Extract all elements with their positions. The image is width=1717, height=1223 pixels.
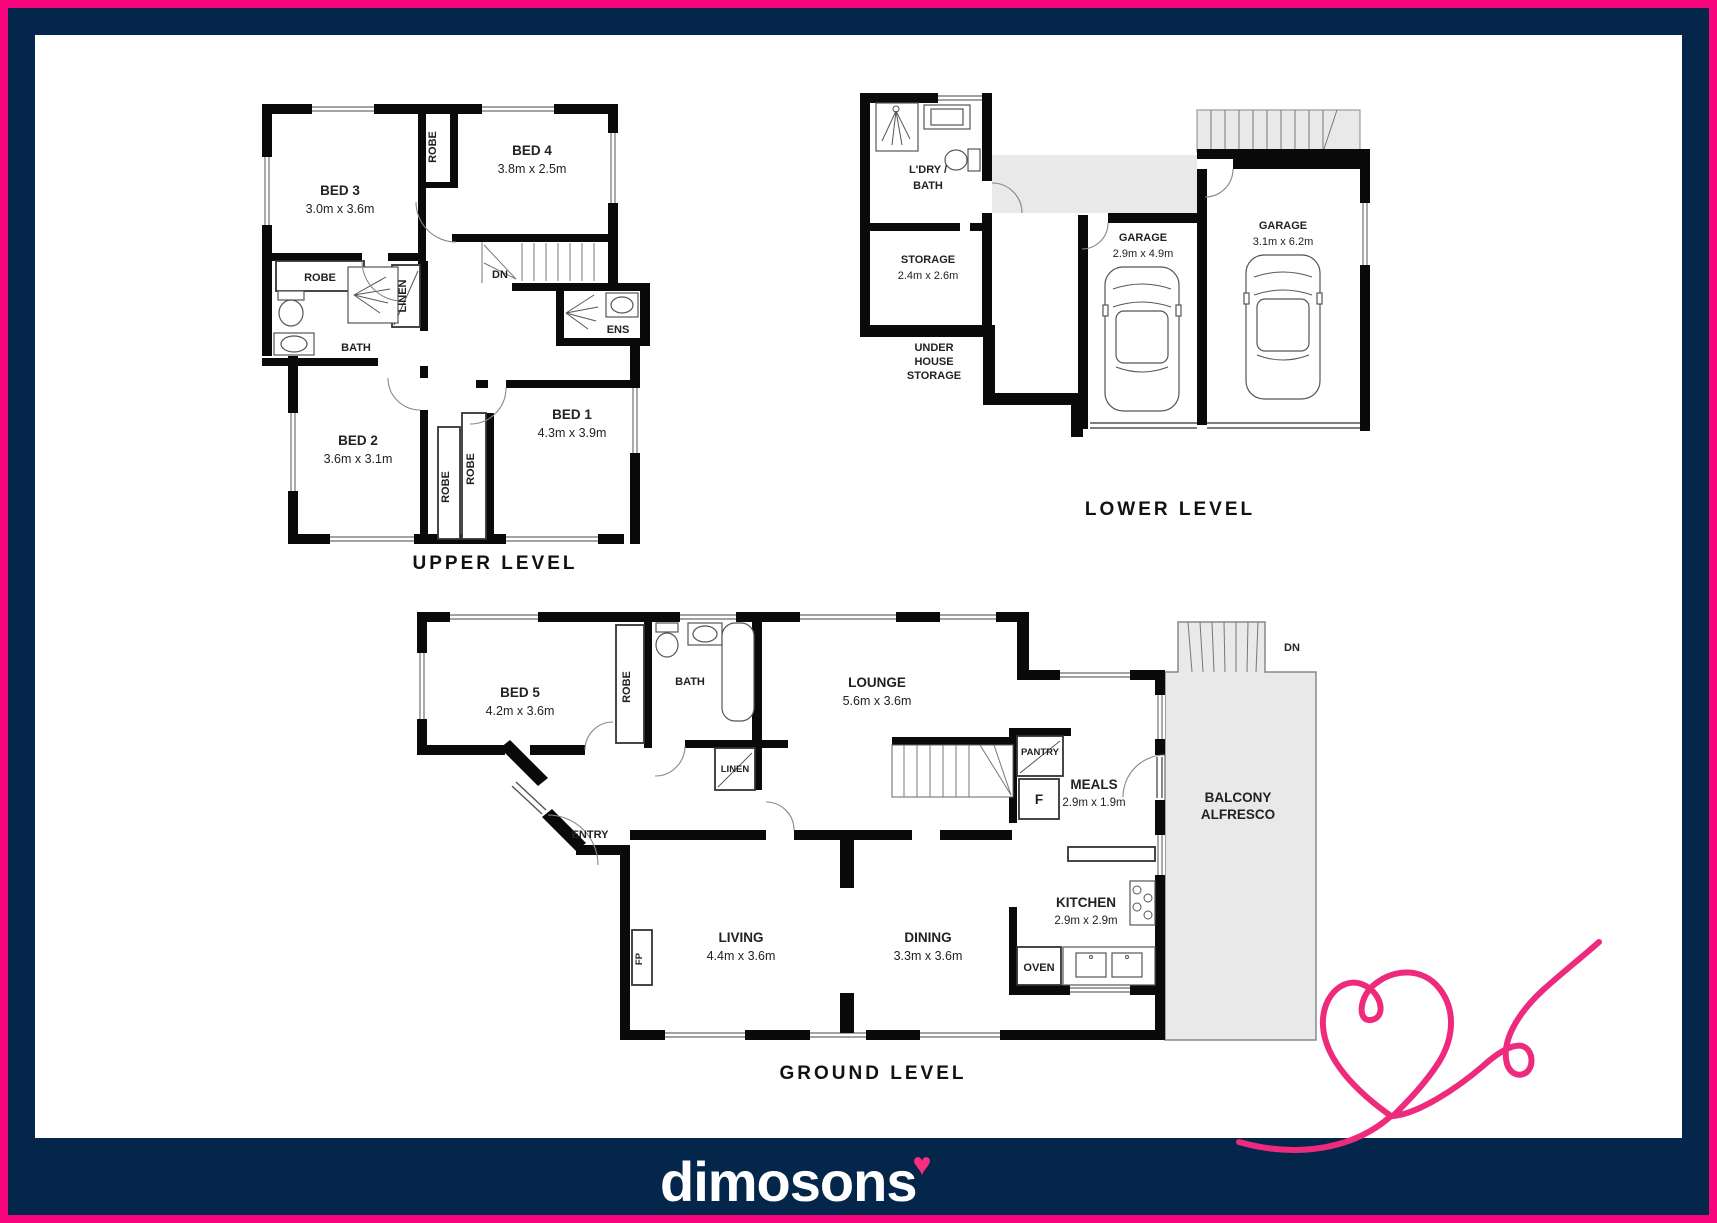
window xyxy=(938,93,982,103)
ground-level-title: GROUND LEVEL xyxy=(743,1063,1003,1085)
living-label: LIVING xyxy=(718,930,763,945)
door-arc xyxy=(766,802,794,830)
window xyxy=(940,612,996,622)
window xyxy=(450,612,538,622)
stairs xyxy=(1197,110,1360,152)
upper-level-plan: BED 3 3.0m x 3.6m ROBE BED 4 3.8m x 2.5m… xyxy=(260,95,655,555)
balcony-label-line1: BALCONY xyxy=(1205,790,1272,805)
linen-label: LINEN xyxy=(721,764,750,775)
window xyxy=(608,133,618,203)
bath-label: BATH xyxy=(341,342,371,354)
window xyxy=(288,413,298,491)
bed5-dims: 4.2m x 3.6m xyxy=(486,704,555,718)
bed2-label: BED 2 xyxy=(338,433,378,448)
robe-label: ROBE xyxy=(621,671,633,703)
garage1-label: GARAGE xyxy=(1119,232,1167,244)
garage2-dims: 3.1m x 6.2m xyxy=(1253,236,1314,248)
basin-icon xyxy=(274,333,314,355)
oven-label: OVEN xyxy=(1023,962,1054,974)
window xyxy=(262,157,272,225)
fridge-label: F xyxy=(1035,792,1043,807)
brand-logo-text: dimosons xyxy=(660,1150,916,1213)
ldry-label-line1: L'DRY / xyxy=(909,164,947,176)
door-arc xyxy=(1205,169,1233,197)
fp-label: FP xyxy=(634,952,645,965)
garage1-dims: 2.9m x 4.9m xyxy=(1113,248,1174,260)
robe-label: ROBE xyxy=(304,272,336,284)
navy-frame: BED 3 3.0m x 3.6m ROBE BED 4 3.8m x 2.5m… xyxy=(8,8,1709,1215)
living-dims: 4.4m x 3.6m xyxy=(707,949,776,963)
under-house-line3: STORAGE xyxy=(907,370,961,382)
under-house-line1: UNDER xyxy=(914,342,953,354)
meals-label: MEALS xyxy=(1070,777,1117,792)
plan-panel: BED 3 3.0m x 3.6m ROBE BED 4 3.8m x 2.5m… xyxy=(35,35,1682,1138)
cooktop-icon xyxy=(1130,881,1155,925)
dining-dims: 3.3m x 3.6m xyxy=(894,949,963,963)
shower-icon xyxy=(566,295,598,329)
shower-icon xyxy=(348,267,398,323)
window xyxy=(1060,670,1130,680)
ldry-label-line2: BATH xyxy=(913,180,943,192)
window xyxy=(312,104,374,114)
entry-label: ENTRY xyxy=(572,829,610,841)
window xyxy=(506,534,598,544)
driveway-landing xyxy=(992,155,1197,213)
floorplan-sheet: BED 3 3.0m x 3.6m ROBE BED 4 3.8m x 2.5m… xyxy=(0,0,1717,1223)
bed1-dims: 4.3m x 3.9m xyxy=(538,426,607,440)
bed1-label: BED 1 xyxy=(552,407,592,422)
door-arc xyxy=(585,722,613,750)
brand-logo: dimosons♥ xyxy=(660,1154,930,1210)
toilet-icon xyxy=(945,149,980,171)
bathtub-icon xyxy=(722,623,754,721)
window xyxy=(810,1030,866,1040)
bed4-label: BED 4 xyxy=(512,143,552,158)
lounge-dims: 5.6m x 3.6m xyxy=(843,694,912,708)
toilet-icon xyxy=(656,623,678,657)
sink-icon xyxy=(1063,947,1155,985)
window xyxy=(680,612,736,622)
bath-label: BATH xyxy=(675,676,705,688)
window xyxy=(1155,695,1165,739)
window xyxy=(417,653,427,719)
bed4-dims: 3.8m x 2.5m xyxy=(498,162,567,176)
window xyxy=(482,104,554,114)
window xyxy=(1070,985,1130,995)
bed2-dims: 3.6m x 3.1m xyxy=(324,452,393,466)
kitchen-label: KITCHEN xyxy=(1056,895,1116,910)
ground-level-plan: BED 5 4.2m x 3.6m ROBE BATH LINEN LOUNGE… xyxy=(380,595,1330,1060)
lower-level-title: LOWER LEVEL xyxy=(1040,499,1300,521)
brand-heart-icon: ♥ xyxy=(912,1146,930,1182)
door-arc xyxy=(1123,755,1165,797)
storage-dims: 2.4m x 2.6m xyxy=(898,270,959,282)
window xyxy=(665,1030,745,1040)
lounge-label: LOUNGE xyxy=(848,675,906,690)
garage2-label: GARAGE xyxy=(1259,220,1307,232)
lower-level-plan: L'DRY / BATH STORAGE 2.4m x 2.6m UNDER H… xyxy=(850,85,1385,485)
robe-label: ROBE xyxy=(440,471,452,503)
storage-label: STORAGE xyxy=(901,254,955,266)
laundry-sink-icon xyxy=(924,105,970,129)
robe-label: ROBE xyxy=(465,453,477,485)
balcony-label-line2: ALFRESCO xyxy=(1201,807,1275,822)
robe-label: ROBE xyxy=(427,131,439,163)
window xyxy=(630,387,640,453)
bed3-dims: 3.0m x 3.6m xyxy=(306,202,375,216)
door-arc xyxy=(388,378,420,410)
shower-icon xyxy=(876,103,918,151)
kitchen-dims: 2.9m x 2.9m xyxy=(1054,915,1117,927)
bed3-label: BED 3 xyxy=(320,183,360,198)
balcony-dn-label: DN xyxy=(1284,642,1300,654)
basin-icon xyxy=(688,623,722,645)
dining-label: DINING xyxy=(904,930,951,945)
window xyxy=(1360,203,1370,265)
stairs xyxy=(892,745,1013,797)
pantry-label: PANTRY xyxy=(1021,747,1060,758)
window xyxy=(330,534,414,544)
basin-icon xyxy=(606,293,638,317)
stairs-dn-label: DN xyxy=(492,269,508,281)
window xyxy=(920,1030,1000,1040)
door-arc xyxy=(655,746,685,776)
window xyxy=(800,612,896,622)
under-house-line2: HOUSE xyxy=(914,356,953,368)
bed5-label: BED 5 xyxy=(500,685,540,700)
ens-label: ENS xyxy=(607,324,630,336)
heart-scribble xyxy=(1225,910,1605,1160)
toilet-icon xyxy=(278,291,304,326)
upper-level-title: UPPER LEVEL xyxy=(365,553,625,575)
linen-label: LINEN xyxy=(397,279,409,312)
window xyxy=(1155,835,1165,875)
kitchen-bench xyxy=(1068,847,1155,861)
meals-dims: 2.9m x 1.9m xyxy=(1062,797,1125,809)
